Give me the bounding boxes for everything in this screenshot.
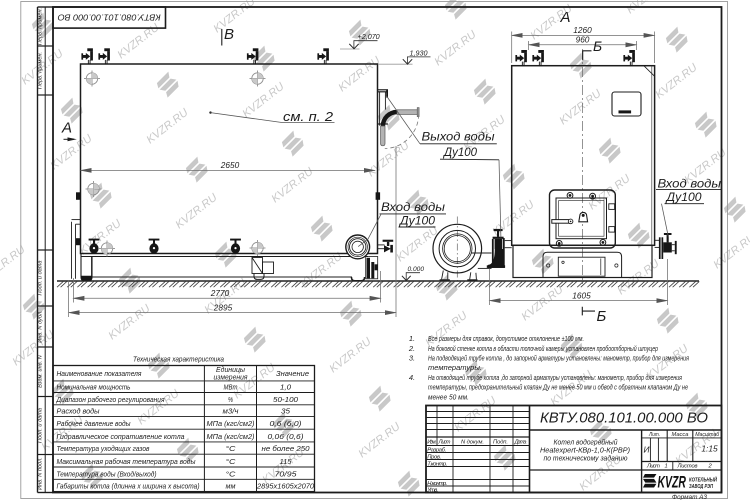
svg-text:Рабочее давление воды: Рабочее давление воды bbox=[57, 420, 132, 428]
svg-text:На отводящей трубе котла ,до з: На отводящей трубе котла ,до запорной ар… bbox=[428, 373, 682, 382]
svg-text:Масса: Масса bbox=[672, 432, 690, 438]
svg-text:Лит.: Лит. bbox=[648, 432, 660, 438]
svg-text:см. п. 2: см. п. 2 bbox=[283, 109, 334, 124]
svg-text:менее 50 мм.: менее 50 мм. bbox=[428, 392, 469, 401]
svg-text:Масштаб: Масштаб bbox=[695, 432, 720, 438]
svg-text:Утв.: Утв. bbox=[426, 488, 438, 494]
svg-text:Вход воды: Вход воды bbox=[658, 177, 722, 191]
svg-text:Б: Б bbox=[593, 38, 602, 54]
svg-text:N докум.: N докум. bbox=[461, 440, 484, 446]
svg-text:МПа (кгс/см2): МПа (кгс/см2) bbox=[207, 434, 255, 441]
svg-text:Изм.: Изм. bbox=[427, 440, 436, 446]
svg-text:Разраб.: Разраб. bbox=[427, 447, 446, 453]
svg-text:2895: 2895 bbox=[213, 303, 233, 313]
svg-text:Перв. примен.: Перв. примен. bbox=[38, 8, 44, 45]
svg-text:Выход воды: Выход воды bbox=[422, 130, 495, 144]
svg-text:Все размеры для справок, допус: Все размеры для справок, допустимое откл… bbox=[428, 334, 584, 343]
svg-text:Подп. и дата: Подп. и дата bbox=[38, 408, 44, 443]
svg-text:КВТУ.080.101.00.000 ВО: КВТУ.080.101.00.000 ВО bbox=[540, 410, 708, 426]
svg-text:Листов: Листов bbox=[677, 464, 698, 470]
svg-text:Номинальная мощность: Номинальная мощность bbox=[57, 385, 131, 392]
svg-text:Лист: Лист bbox=[646, 464, 660, 470]
svg-text:не более 250: не более 250 bbox=[262, 445, 310, 453]
svg-text:А: А bbox=[61, 120, 72, 137]
svg-text:ЗАВОД РЭП: ЗАВОД РЭП bbox=[689, 484, 713, 490]
svg-text:Н.контр.: Н.контр. bbox=[427, 481, 447, 487]
svg-text:измерения: измерения bbox=[214, 374, 248, 381]
svg-text:1: 1 bbox=[665, 464, 668, 470]
svg-text:Максимальная рабочая температу: Максимальная рабочая температура воды bbox=[57, 458, 197, 466]
svg-text:%: % bbox=[228, 397, 233, 404]
svg-text:Техническая характеристика: Техническая характеристика bbox=[133, 355, 224, 364]
svg-text:м3/ч: м3/ч bbox=[223, 408, 239, 415]
svg-text:Подп. и дата: Подп. и дата bbox=[38, 260, 44, 295]
svg-text:960: 960 bbox=[576, 35, 590, 45]
svg-text:А: А bbox=[560, 9, 571, 26]
svg-text:1605: 1605 bbox=[572, 291, 591, 301]
svg-text:КВТУ.080.101.00.000 ВО: КВТУ.080.101.00.000 ВО bbox=[57, 12, 160, 22]
svg-text:2770: 2770 bbox=[210, 288, 230, 298]
svg-text:Т.контр.: Т.контр. bbox=[427, 461, 447, 467]
svg-text:Лист: Лист bbox=[438, 440, 451, 446]
svg-text:Ду100: Ду100 bbox=[398, 213, 435, 227]
svg-text:1,930: 1,930 bbox=[410, 48, 428, 57]
svg-text:°С: °С bbox=[226, 470, 237, 478]
svg-text:На подводящей трубе котла ,: На подводящей трубе котла , до запорной … bbox=[428, 354, 689, 363]
svg-text:4.: 4. bbox=[409, 373, 415, 382]
svg-text:И: И bbox=[644, 444, 650, 454]
svg-text:50-100: 50-100 bbox=[273, 397, 298, 404]
svg-text:Ду100: Ду100 bbox=[664, 190, 701, 204]
svg-text:Габариты котла (длинна х ширин: Габариты котла (длинна х ширина х высота… bbox=[57, 483, 200, 491]
svg-text:температуры, предохранительный: температуры, предохранительный клапан Ду… bbox=[428, 383, 688, 392]
svg-text:°С: °С bbox=[226, 458, 237, 466]
svg-text:Ду100: Ду100 bbox=[442, 145, 477, 159]
svg-text:температуры.: температуры. bbox=[428, 363, 482, 372]
svg-text:по техническому заданию: по техническому заданию bbox=[544, 453, 628, 462]
svg-text:КОТЕЛЬНЫЙ: КОТЕЛЬНЫЙ bbox=[689, 475, 717, 483]
svg-text:Единицы: Единицы bbox=[216, 366, 246, 374]
svg-text:Перв. примен.: Перв. примен. bbox=[38, 52, 44, 89]
svg-text:2895х1605х2070: 2895х1605х2070 bbox=[256, 484, 314, 491]
svg-text:Пров.: Пров. bbox=[427, 454, 441, 460]
svg-text:Подп.: Подп. bbox=[493, 440, 508, 446]
svg-text:Диапазон рабочего регулировани: Диапазон рабочего регулирования bbox=[56, 396, 165, 404]
svg-text:3.: 3. bbox=[409, 354, 415, 363]
svg-text:0,06 (0,6): 0,06 (0,6) bbox=[268, 434, 304, 441]
svg-text:2.: 2. bbox=[408, 344, 415, 353]
svg-text:Б: Б bbox=[597, 308, 607, 325]
svg-text:115: 115 bbox=[280, 459, 292, 466]
svg-text:Гидравлическое сопративление к: Гидравлическое сопративление котла bbox=[57, 433, 185, 441]
svg-text:1260: 1260 bbox=[573, 25, 592, 35]
svg-text:+2,070: +2,070 bbox=[358, 32, 380, 41]
svg-text:Формат А3: Формат А3 bbox=[672, 494, 707, 500]
svg-text:1:15: 1:15 bbox=[701, 444, 718, 454]
svg-text:35: 35 bbox=[281, 408, 290, 415]
svg-text:1,0: 1,0 bbox=[280, 385, 291, 392]
svg-text:Вход воды: Вход воды bbox=[381, 200, 445, 214]
svg-text:Расход воды: Расход воды bbox=[57, 407, 101, 415]
svg-text:1.: 1. bbox=[409, 334, 415, 343]
svg-text:Температура воды (Вход/выход): Температура воды (Вход/выход) bbox=[57, 470, 157, 478]
svg-text:мм: мм bbox=[226, 484, 236, 491]
svg-text:Инв. N подл.: Инв. N подл. bbox=[38, 457, 44, 490]
svg-text:°С: °С bbox=[226, 445, 237, 453]
svg-text:0.000: 0.000 bbox=[408, 266, 425, 273]
svg-text:Дата: Дата bbox=[514, 440, 528, 446]
svg-text:2650: 2650 bbox=[220, 160, 240, 170]
svg-text:KVZR: KVZR bbox=[658, 473, 687, 491]
svg-text:На боковой стенке котла в обла: На боковой стенке котла в области топочн… bbox=[428, 344, 658, 353]
svg-text:70/95: 70/95 bbox=[275, 471, 297, 478]
svg-text:0,6 (6,0): 0,6 (6,0) bbox=[270, 421, 302, 428]
svg-text:Инв. N дубл.: Инв. N дубл. bbox=[38, 310, 44, 342]
svg-text:Температура уходящих газов: Температура уходящих газов bbox=[57, 445, 150, 453]
svg-text:Взам. инв. N: Взам. инв. N bbox=[38, 354, 44, 388]
svg-text:Наименование показателя: Наименование показателя bbox=[57, 371, 142, 378]
svg-text:МПа (кгс/см2): МПа (кгс/см2) bbox=[207, 421, 255, 428]
svg-text:МВт: МВт bbox=[224, 385, 238, 392]
svg-text:В: В bbox=[224, 26, 234, 43]
svg-text:Значение: Значение bbox=[276, 371, 309, 378]
